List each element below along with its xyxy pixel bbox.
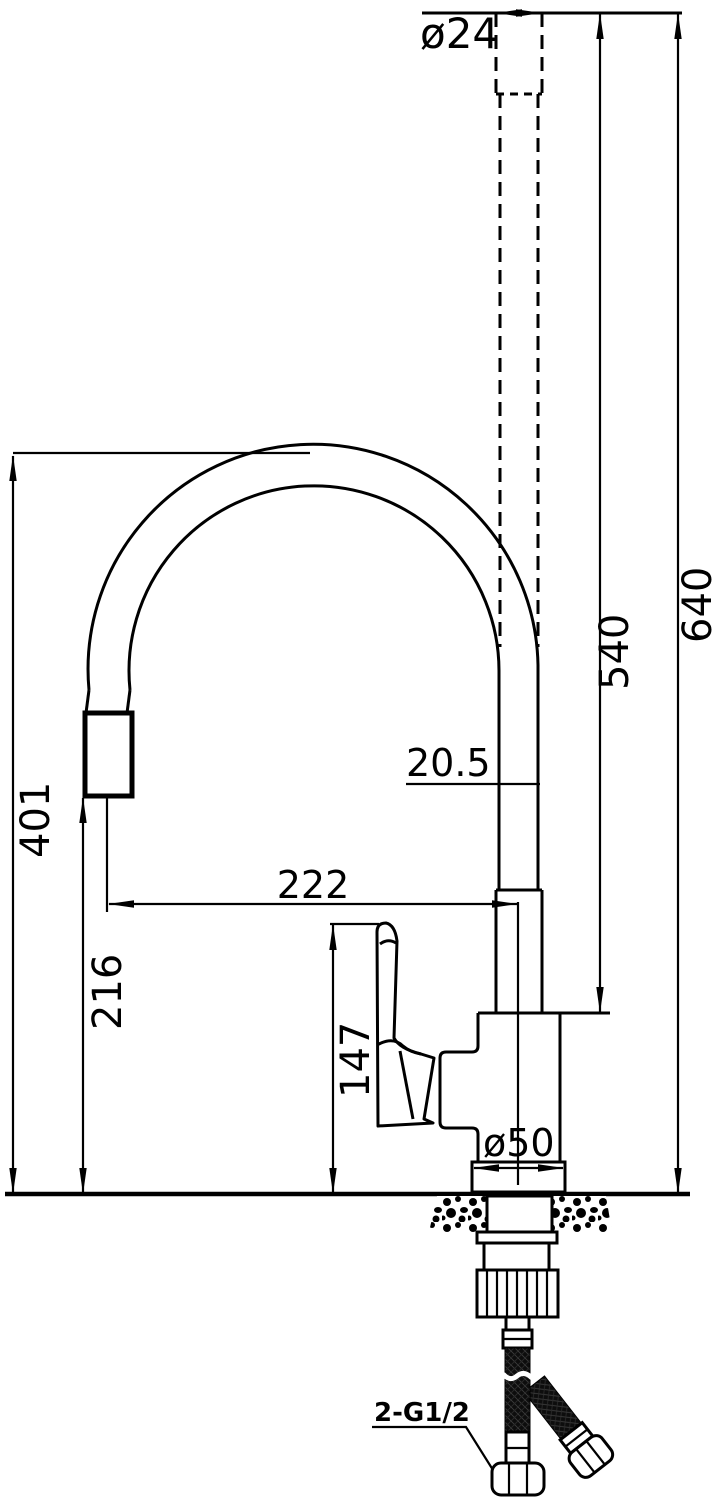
threaded-shank	[487, 1196, 552, 1232]
dim-222-label: 222	[277, 863, 350, 907]
hose-left-inner	[127, 690, 130, 713]
dia24-label: ø24	[420, 9, 499, 58]
countertop-section-hatch-right	[552, 1196, 612, 1232]
washer-plate	[477, 1232, 557, 1243]
handle-lever	[377, 923, 434, 1126]
faucet-outline	[5, 13, 690, 1495]
countertop-section-hatch-left	[429, 1196, 489, 1232]
dimension-540: 540	[592, 14, 638, 1012]
dim-540-label: 540	[592, 614, 638, 690]
handle-knob-detail	[380, 941, 396, 944]
faucet-technical-drawing: ø24 640 540 401 216 222	[0, 0, 715, 1500]
mounting-nut	[477, 1270, 558, 1317]
spout-phantom-dashed	[496, 13, 542, 647]
gooseneck-arc	[86, 444, 538, 713]
hose-hex-nut-vertical	[492, 1463, 544, 1495]
dimension-dia24: ø24	[420, 9, 541, 58]
supply-hose-vertical	[492, 1348, 544, 1495]
body-left-profile	[440, 1013, 478, 1162]
dim-147-label: 147	[333, 1022, 379, 1098]
dia50-label: ø50	[483, 1121, 555, 1165]
gooseneck-outer-arc	[88, 444, 538, 690]
below-counter-assembly	[429, 1196, 616, 1495]
faucet-technical-drawing-page: ø24 640 540 401 216 222	[0, 0, 715, 1500]
dimensions: ø24 640 540 401 216 222	[13, 9, 715, 1470]
thread-label: 2-G1/2	[374, 1398, 470, 1428]
dim-640-label: 640	[675, 567, 715, 643]
hose-left-outer	[86, 690, 89, 713]
dim-216-label: 216	[85, 954, 131, 1030]
dimension-dia50: ø50	[474, 1121, 563, 1168]
dimension-20-5: 20.5	[406, 741, 540, 785]
hose-adapter-step	[506, 1317, 529, 1330]
mounting-nut-ribs	[487, 1271, 547, 1316]
handle-outline	[377, 923, 434, 1126]
dim-401-label: 401	[13, 782, 59, 858]
gooseneck-inner-arc	[129, 486, 499, 690]
dimension-640: 640	[675, 14, 715, 1193]
handle-arm-line	[400, 1051, 413, 1119]
spray-head	[85, 713, 132, 796]
dim-205-label: 20.5	[406, 741, 491, 785]
thread-callout: 2-G1/2	[372, 1398, 493, 1470]
thread-leader-line	[372, 1427, 493, 1470]
shank-collar	[484, 1243, 549, 1270]
hose-braid-vertical	[505, 1348, 530, 1432]
dimension-147: 147	[330, 924, 379, 1193]
